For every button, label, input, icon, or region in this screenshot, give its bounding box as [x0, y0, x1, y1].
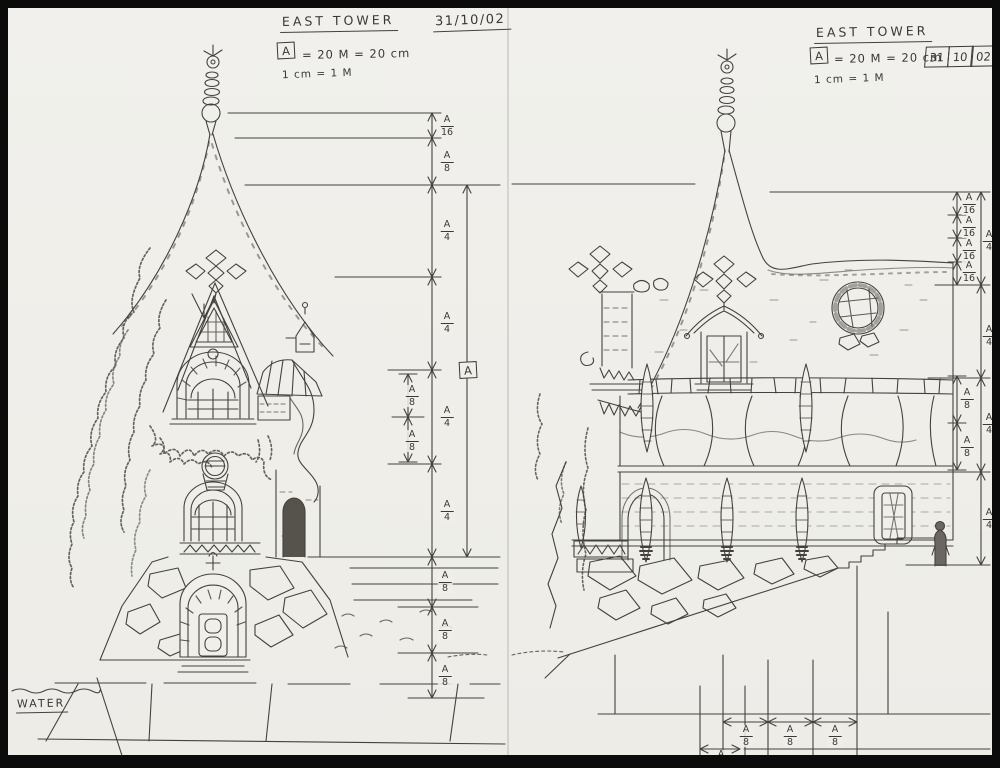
stone-cornice [628, 378, 953, 394]
scrub-line [448, 651, 564, 657]
dim-label: A8 [438, 619, 453, 641]
right-scale-box-letter: A [810, 47, 829, 65]
dim-label: A4 [982, 508, 997, 530]
elevation-drawing-canvas [0, 0, 1000, 768]
dim-label: A8 [960, 388, 975, 410]
spire-finial-side [717, 49, 736, 152]
entrance-door [178, 553, 248, 673]
dim-label: A8 [405, 430, 420, 452]
water-label: WATER [16, 697, 69, 714]
triangle-window [190, 300, 238, 347]
dim-label-clipped: A8 [714, 750, 729, 768]
left-scale-equation: = 20 M = 20 cm [302, 46, 410, 62]
dim-label: A8 [739, 725, 754, 747]
ivy-mass [69, 248, 166, 588]
dim-label: A8 [440, 151, 455, 173]
date-cell-year: 02 [970, 45, 997, 66]
spire-and-eave [598, 150, 953, 416]
wall-lantern [286, 303, 314, 353]
right-date-grid: 31 10 02 [925, 45, 997, 67]
dim-label: A16 [440, 115, 455, 137]
ornament-pillar [569, 246, 668, 390]
dim-label: A8 [438, 665, 453, 687]
dim-label: A4 [440, 220, 455, 242]
spire-finial [202, 45, 222, 135]
dim-label: A16 [962, 261, 977, 283]
ivy-balcony-drape [150, 426, 272, 480]
wall-texture [655, 270, 927, 362]
left-sheet-title: EAST TOWER [280, 12, 399, 33]
spire-roof [113, 134, 333, 356]
left-date-stamp: 31/10/02 [433, 12, 512, 33]
right-sheet-title: EAST TOWER [814, 23, 933, 44]
dim-label: A4 [440, 406, 455, 428]
right-elevation-side-view [448, 49, 953, 678]
dim-label: A8 [405, 385, 420, 407]
dim-label: A4 [440, 312, 455, 334]
left-scale-note: 1 cm = 1 M [282, 67, 353, 81]
overall-dim-reference: A [459, 361, 478, 379]
scale-block-wall [620, 396, 953, 466]
dim-label: A4 [982, 230, 997, 252]
right-scale-note: 1 cm = 1 M [814, 72, 885, 86]
side-turret [257, 360, 322, 557]
left-scale-box-letter: A [277, 42, 296, 60]
water-steps [335, 568, 498, 648]
dim-label: A16 [962, 216, 977, 238]
scale-person-figure [932, 522, 949, 567]
dim-label: A8 [828, 725, 843, 747]
dormer-window [685, 256, 764, 390]
dim-label: A16 [962, 239, 977, 261]
upper-arched-window [170, 349, 256, 424]
round-window [832, 282, 884, 350]
lower-arched-window [180, 482, 260, 554]
flower-cross-ornament [186, 250, 246, 303]
dim-label: A8 [960, 436, 975, 458]
water-line [12, 689, 100, 693]
dim-label: A8 [438, 571, 453, 593]
dim-label: A4 [440, 500, 455, 522]
dim-label: A4 [982, 325, 997, 347]
side-door [874, 486, 912, 544]
dim-label: A16 [962, 193, 977, 215]
left-elevation-front-view [12, 45, 500, 768]
dim-label: A8 [783, 725, 798, 747]
drawing-sheet: EAST TOWER 31/10/02 A = 20 M = 20 cm 1 c… [0, 0, 1000, 768]
dim-label: A4 [982, 413, 997, 435]
